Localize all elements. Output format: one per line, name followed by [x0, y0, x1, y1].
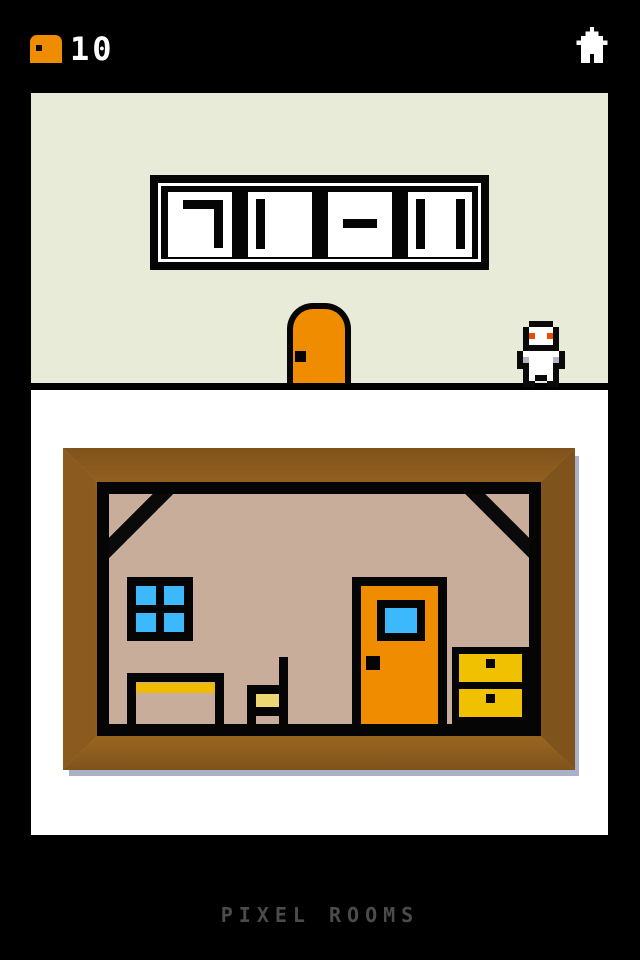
home-icon	[572, 27, 612, 63]
sign-panel-2[interactable]	[248, 192, 312, 257]
dresser-drawer-top[interactable]	[459, 654, 522, 682]
picture-room	[97, 482, 541, 736]
home-button[interactable]	[572, 26, 612, 66]
picture-door[interactable]	[352, 577, 447, 724]
chair-seat-bottom	[247, 707, 288, 716]
picture-frame[interactable]	[63, 448, 575, 770]
top-bar: 10	[0, 0, 640, 93]
window-pane	[164, 613, 184, 632]
symbol-dash-icon	[343, 219, 377, 228]
door-icon	[30, 35, 62, 63]
player-character[interactable]	[517, 321, 565, 387]
picture-dresser[interactable]	[452, 647, 529, 724]
drawer-knob	[486, 694, 495, 703]
picture-door-window	[377, 600, 425, 641]
app-title: PIXEL ROOMS	[0, 903, 640, 927]
picture-door-glass	[385, 608, 417, 633]
sign-panel-1[interactable]	[168, 192, 232, 257]
chair-cushion	[256, 694, 279, 707]
room-scene	[31, 93, 608, 390]
room-counter: 10	[70, 30, 115, 68]
symbol-double-bar-right-icon	[456, 199, 465, 249]
table-top-surface	[136, 683, 215, 693]
drawer-knob	[486, 659, 495, 668]
ceiling-corner-left	[109, 494, 173, 558]
room-door[interactable]	[287, 303, 351, 383]
symbol-double-bar-left-icon	[416, 199, 425, 249]
picture-door-knob	[366, 656, 380, 670]
clue-sign[interactable]	[150, 175, 489, 270]
ceiling-corner-right	[465, 494, 529, 558]
room-door-knob	[295, 351, 306, 362]
chair-seat-frame	[247, 685, 288, 694]
picture-chair[interactable]	[247, 657, 288, 724]
footer: PIXEL ROOMS	[0, 835, 640, 960]
dresser-drawer-bottom[interactable]	[459, 689, 522, 717]
picture-table[interactable]	[127, 673, 224, 724]
window-pane	[136, 586, 156, 605]
sign-panel-4[interactable]	[408, 192, 472, 257]
symbol-corner-side-icon	[214, 200, 223, 248]
window-pane	[136, 613, 156, 632]
picture-window[interactable]	[127, 577, 193, 641]
game-screen: 10	[0, 0, 640, 960]
window-pane	[164, 586, 184, 605]
picture-wall	[31, 390, 608, 835]
door-knob-dot	[36, 45, 42, 51]
sign-panel-3[interactable]	[328, 192, 392, 257]
symbol-left-bar-icon	[256, 199, 265, 249]
